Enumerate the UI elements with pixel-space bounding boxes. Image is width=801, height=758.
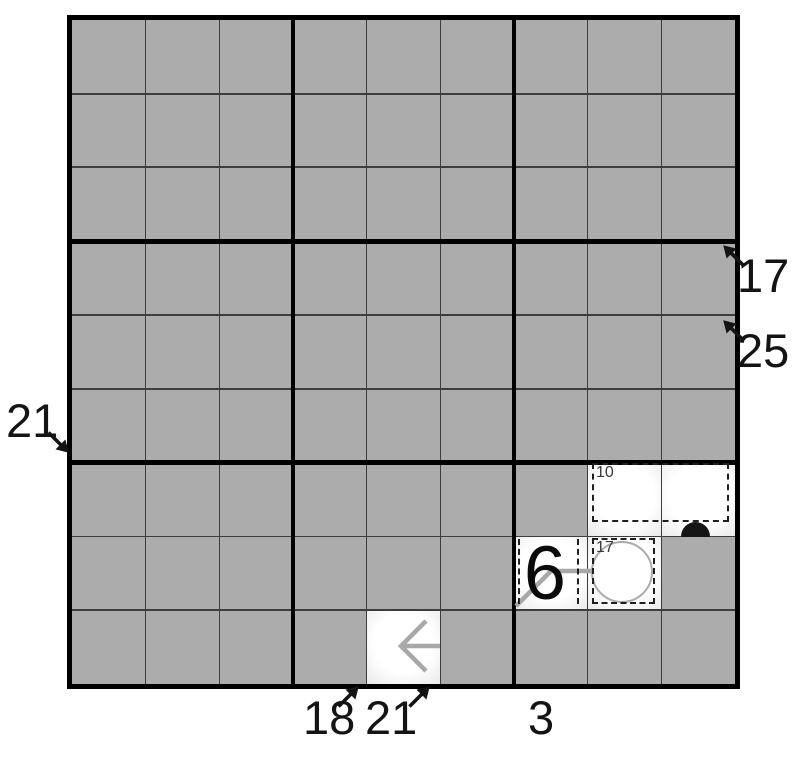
clue-right-25: 25 [737,325,789,377]
clue-bottom-18: 18 [303,692,355,744]
little-killer-arrow-icon [45,429,73,457]
clue-right-17: 17 [737,250,789,302]
grid-inner: 10 17 6 [72,20,735,684]
cage-10: 10 [592,463,729,522]
clue-bottom-3: 3 [528,692,554,744]
left-arrow-icon [401,621,440,671]
puzzle-screen: 10 17 6 17 25 21 18 21 3 [0,0,801,758]
cage-17-label: 17 [595,539,615,557]
sudoku-grid[interactable]: 10 17 6 [67,15,740,689]
cage-17: 17 [592,538,655,604]
clue-bottom-21: 21 [365,692,417,744]
given-digit-6: 6 [508,536,582,610]
cage-10-label: 10 [595,464,615,482]
